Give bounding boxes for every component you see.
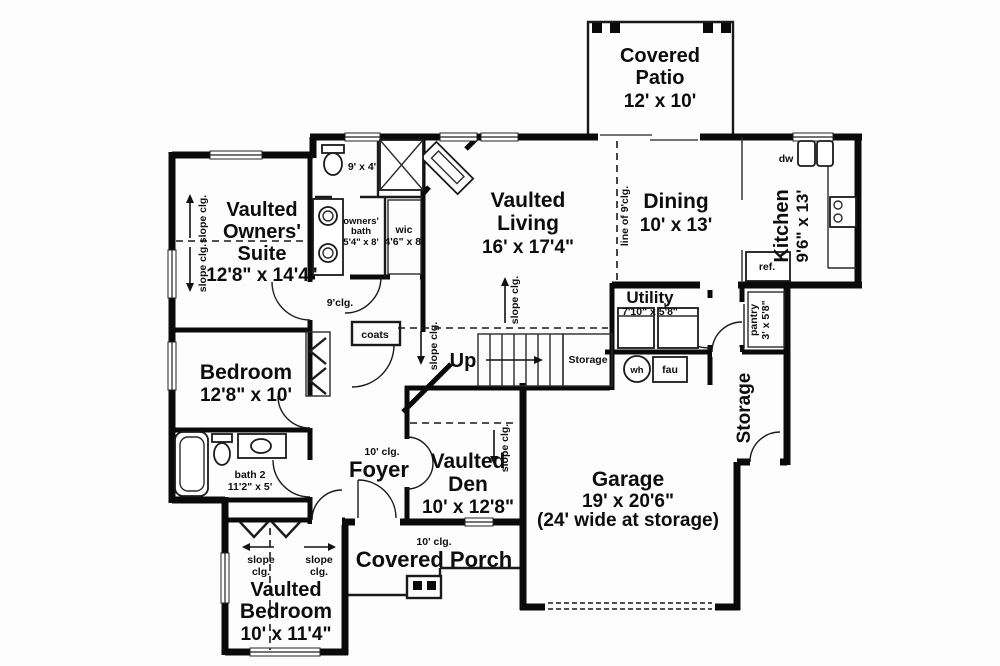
bedroom3-dims: 10' x 11'4" (241, 624, 332, 645)
slope-bedroom3-right: slope (305, 554, 333, 566)
suite-dims: 12'8" x 14'4" (206, 265, 318, 286)
suite-label3: Suite (238, 243, 287, 265)
living-label: Vaulted (491, 189, 566, 212)
porch-label: Covered Porch (356, 547, 513, 572)
toilet-room-dims: 9' x 4' (348, 161, 376, 173)
garage-note: (24' wide at storage) (537, 510, 719, 531)
living-label2: Living (497, 212, 559, 235)
patio-slider-door (598, 132, 700, 142)
floor-plan-drawing: Covered Patio 12' x 10' Vaulted Living 1… (0, 0, 1000, 666)
dining-label: Dining (643, 190, 708, 213)
wh-label: wh (629, 365, 643, 376)
owners-bath-label2: bath (351, 226, 371, 237)
slope-bedroom3-left: slope (247, 554, 275, 566)
wic-label: wic (395, 224, 413, 236)
owners-bath-dims: 5'4" x 8' (343, 237, 378, 248)
garage-dims: 19' x 20'6" (582, 491, 674, 512)
slope-clg-hall: slope clg. (428, 322, 440, 371)
fireplace (421, 142, 473, 194)
bedroom3-label2: Bedroom (240, 600, 332, 623)
toilet-tank (322, 145, 344, 153)
sink (319, 244, 337, 262)
kitchen-sink (798, 141, 815, 166)
suite-label2: Owners' (223, 221, 301, 243)
bedroom2-label: Bedroom (200, 361, 292, 384)
up-label: Up (450, 350, 477, 372)
utility-label: Utility (626, 288, 674, 307)
patio-label: Covered (620, 45, 700, 67)
slope-clg-den: slope clg. (499, 424, 511, 473)
suite-label: Vaulted (226, 199, 297, 221)
toilet (324, 153, 342, 175)
sink (251, 439, 271, 453)
den-label: Vaulted (431, 450, 506, 473)
covered-porch-outline (345, 568, 523, 598)
bedroom2-dims: 12'8" x 10' (200, 385, 292, 406)
bath2-label: bath 2 (235, 469, 266, 481)
toilet (214, 443, 230, 465)
clg9-label: 9'clg. (327, 297, 354, 309)
fau-label: fau (662, 364, 678, 376)
utility-dims: 7'10" x 5'8" (622, 306, 678, 318)
storage-stairs-label: Storage (568, 354, 607, 366)
toilet-tank (212, 434, 232, 442)
range (830, 197, 856, 227)
kitchen-label: Kitchen (771, 189, 793, 262)
den-dims: 10' x 12'8" (422, 497, 514, 518)
patio-label2: Patio (636, 67, 685, 89)
storage-garage-label: Storage (734, 373, 755, 444)
bath2-dims: 11'2" x 5' (228, 481, 272, 493)
bedroom3-label: Vaulted (250, 579, 321, 601)
pantry-dims: 3' x 5'8" (760, 300, 772, 339)
slope-clg-suite-bottom: slope clg. (197, 244, 209, 293)
living-dims: 16' x 17'4" (482, 237, 574, 258)
floor-plan-page: Covered Patio 12' x 10' Vaulted Living 1… (0, 0, 1000, 666)
pantry-label: pantry (748, 304, 760, 336)
dw-label: dw (779, 153, 794, 165)
kitchen-dims: 9'6" x 13' (793, 190, 812, 263)
slope-clg-living: slope clg. (509, 276, 521, 325)
dining-dims: 10' x 13' (640, 215, 712, 236)
ref-label: ref. (759, 261, 775, 273)
wic-dims: 4'6" x 8' (384, 236, 423, 248)
coats-label: coats (361, 329, 389, 341)
garage-label: Garage (592, 468, 664, 491)
line-of-9clg-label: line of 9'clg. (619, 186, 631, 246)
foyer-label: Foyer (349, 457, 409, 482)
slope-bedroom3-left2: clg. (252, 566, 270, 578)
patio-dims: 12' x 10' (624, 91, 696, 112)
den-label2: Den (448, 473, 488, 496)
sink (319, 207, 337, 225)
slope-bedroom3-right2: clg. (310, 566, 328, 578)
slope-clg-suite-top: slope clg. (197, 195, 209, 244)
